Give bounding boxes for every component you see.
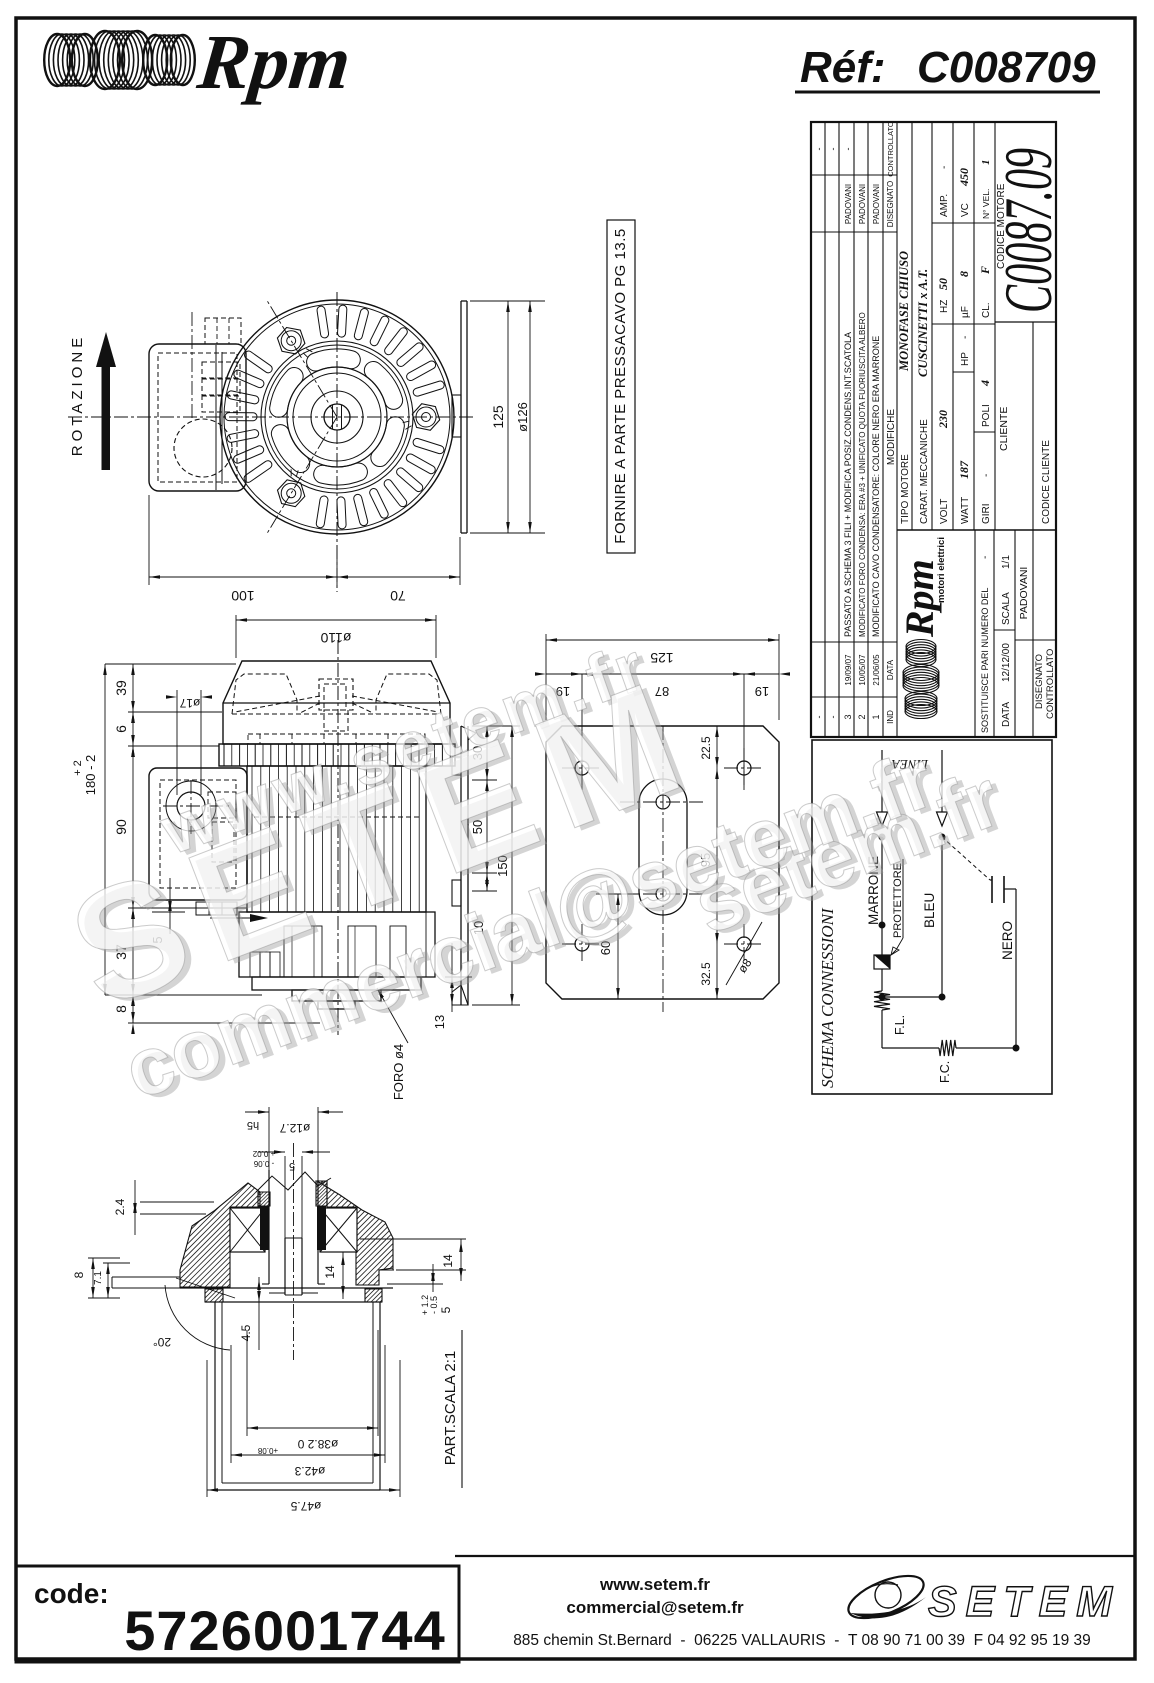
svg-text:PART.SCALA 2:1: PART.SCALA 2:1 — [442, 1351, 459, 1466]
svg-text:125: 125 — [490, 405, 506, 429]
svg-text:PADOVANI: PADOVANI — [1018, 567, 1030, 620]
svg-text:1: 1 — [980, 160, 992, 166]
svg-text:IND: IND — [886, 710, 895, 724]
svg-text:NERO: NERO — [1000, 921, 1015, 960]
svg-text:PADOVANI: PADOVANI — [844, 184, 853, 224]
svg-text:C0087.09: C0087.09 — [992, 148, 1067, 313]
svg-text:ø12.7: ø12.7 — [279, 1121, 310, 1135]
svg-text:CUSCINETTI x A.T.: CUSCINETTI x A.T. — [916, 269, 930, 377]
svg-text:-: - — [843, 148, 853, 151]
svg-text:20°: 20° — [153, 1335, 171, 1349]
svg-text:- 0.5: - 0.5 — [429, 1296, 439, 1314]
svg-text:CLIENTE: CLIENTE — [998, 407, 1010, 451]
svg-text:h5: h5 — [247, 1119, 259, 1131]
svg-text:WATT: WATT — [960, 497, 971, 524]
svg-text:5: 5 — [439, 1306, 453, 1313]
svg-text:-: - — [960, 336, 971, 339]
svg-text:-: - — [814, 148, 824, 151]
svg-text:C008709: C008709 — [917, 43, 1096, 92]
svg-text:PADOVANI: PADOVANI — [858, 184, 867, 224]
svg-text:39: 39 — [113, 680, 129, 696]
svg-text:32.5: 32.5 — [699, 962, 713, 986]
svg-text:10/05/07: 10/05/07 — [858, 654, 867, 686]
svg-text:+0.08: +0.08 — [257, 1446, 278, 1455]
svg-text:19/09/07: 19/09/07 — [844, 654, 853, 686]
svg-text:ø17: ø17 — [179, 696, 200, 710]
svg-text:+ 2: + 2 — [72, 760, 84, 776]
svg-text:3: 3 — [843, 714, 853, 719]
svg-text:PASSATO A SCHEMA 3 FILI + MODI: PASSATO A SCHEMA 3 FILI + MODIFICA POSIZ… — [843, 332, 853, 637]
svg-text:MONOFASE CHIUSO: MONOFASE CHIUSO — [897, 251, 911, 372]
svg-text:commercial@setem.fr: commercial@setem.fr — [566, 1598, 744, 1617]
svg-text:4.5: 4.5 — [239, 1324, 253, 1341]
svg-text:ø126: ø126 — [515, 402, 530, 432]
svg-text:FORNIRE A PARTE PRESSACAVO PG: FORNIRE A PARTE PRESSACAVO PG 13.5 — [612, 228, 629, 543]
svg-text:-: - — [828, 148, 838, 151]
svg-text:1/1: 1/1 — [1001, 555, 1012, 569]
svg-text:ø47.5: ø47.5 — [290, 1499, 321, 1513]
svg-text:motori elettrici: motori elettrici — [936, 537, 947, 603]
svg-text:AMP.: AMP. — [939, 194, 950, 217]
svg-text:PADOVANI: PADOVANI — [872, 184, 881, 224]
svg-text:14: 14 — [323, 1265, 337, 1279]
svg-text:2.4: 2.4 — [113, 1198, 127, 1215]
svg-text:100: 100 — [231, 588, 255, 604]
svg-text:DATA: DATA — [886, 659, 895, 680]
svg-text:-: - — [828, 716, 838, 719]
svg-text:13: 13 — [432, 1015, 447, 1029]
svg-text:BLEU: BLEU — [922, 893, 937, 928]
svg-text:µF: µF — [960, 306, 971, 318]
svg-text:187: 187 — [957, 460, 971, 479]
svg-text:ø38.2 0: ø38.2 0 — [297, 1437, 338, 1451]
svg-text:21/06/05: 21/06/05 — [872, 654, 881, 686]
svg-text:DISEGNATO: DISEGNATO — [886, 181, 895, 227]
svg-text:8: 8 — [72, 1271, 86, 1278]
svg-text:SCALA: SCALA — [1001, 592, 1012, 625]
svg-text:F.C.: F.C. — [938, 1061, 952, 1083]
svg-text:GIRI: GIRI — [981, 503, 992, 524]
svg-text:-: - — [939, 166, 950, 169]
svg-text:CONTROLLATO: CONTROLLATO — [886, 121, 895, 177]
svg-text:5726001744: 5726001744 — [124, 1599, 445, 1662]
svg-text:50: 50 — [936, 278, 950, 290]
svg-text:DISEGNATO: DISEGNATO — [1034, 654, 1045, 709]
svg-text:MODIFICATO FORO CONDENSA: ERA: MODIFICATO FORO CONDENSA: ERA #3 + UNIFI… — [858, 312, 867, 637]
svg-text:450: 450 — [957, 168, 971, 187]
svg-text:180 - 2: 180 - 2 — [83, 755, 98, 795]
svg-text:SOSTITUISCE PARI NUMERO DEL: SOSTITUISCE PARI NUMERO DEL — [980, 588, 990, 733]
svg-text:SETEM: SETEM — [928, 1578, 1121, 1626]
svg-text:ø8: ø8 — [735, 956, 755, 976]
svg-text:F.L.: F.L. — [893, 1015, 907, 1035]
svg-text:7.1: 7.1 — [93, 1271, 104, 1285]
svg-text:Rpm: Rpm — [193, 18, 355, 105]
svg-text:POLI: POLI — [981, 404, 992, 427]
svg-text:F: F — [978, 266, 992, 275]
svg-text:VOLT: VOLT — [939, 499, 950, 524]
svg-text:MODIFICHE: MODIFICHE — [886, 409, 897, 465]
svg-text:FORO ø4: FORO ø4 — [391, 1044, 406, 1100]
svg-text:12/12/00: 12/12/00 — [1001, 643, 1012, 682]
svg-text:ø110: ø110 — [320, 630, 351, 646]
svg-text:70: 70 — [390, 588, 406, 604]
svg-text:- 0.06: - 0.06 — [253, 1159, 274, 1168]
svg-text:TIPO MOTORE: TIPO MOTORE — [900, 454, 911, 524]
svg-text:CONTROLLATO: CONTROLLATO — [1045, 649, 1056, 719]
svg-text:Réf:: Réf: — [800, 43, 886, 92]
svg-text:230: 230 — [936, 410, 950, 429]
svg-text:-: - — [980, 556, 991, 559]
svg-text:8: 8 — [957, 271, 971, 277]
svg-text:HZ: HZ — [939, 300, 950, 313]
svg-text:N° VEL.: N° VEL. — [981, 189, 991, 219]
svg-text:90: 90 — [113, 819, 129, 835]
svg-text:CL.: CL. — [981, 302, 992, 318]
svg-text:5: 5 — [289, 1160, 295, 1172]
svg-text:6: 6 — [113, 725, 129, 733]
svg-text:SCHEMA CONNESSIONI: SCHEMA CONNESSIONI — [818, 907, 837, 1088]
svg-text:CARAT. MECCANICHE: CARAT. MECCANICHE — [919, 419, 930, 524]
svg-text:4: 4 — [978, 380, 992, 387]
svg-text:-: - — [981, 474, 992, 477]
svg-text:MODIFICATO CAVO CONDENSATORE:: MODIFICATO CAVO CONDENSATORE: COLORE NER… — [871, 336, 881, 637]
svg-text:-: - — [814, 716, 824, 719]
svg-text:www.setem.fr: www.setem.fr — [599, 1575, 710, 1594]
svg-text:19: 19 — [755, 684, 769, 699]
svg-text:HP: HP — [960, 352, 971, 366]
svg-text:DATA: DATA — [1001, 701, 1012, 727]
svg-text:code:: code: — [34, 1578, 109, 1609]
svg-text:1: 1 — [871, 714, 881, 719]
svg-text:ROTAZIONE: ROTAZIONE — [69, 334, 86, 456]
svg-text:885 chemin St.Bernard - 0622: 885 chemin St.Bernard - 06225 VALLAURIS … — [513, 1632, 1091, 1649]
svg-text:2: 2 — [857, 714, 867, 719]
svg-text:+ 0.02: + 0.02 — [252, 1149, 275, 1158]
svg-text:14: 14 — [441, 1254, 455, 1268]
svg-text:CODICE CLIENTE: CODICE CLIENTE — [1041, 440, 1052, 524]
svg-text:ø42.3: ø42.3 — [294, 1464, 325, 1478]
svg-text:VC: VC — [960, 203, 971, 217]
